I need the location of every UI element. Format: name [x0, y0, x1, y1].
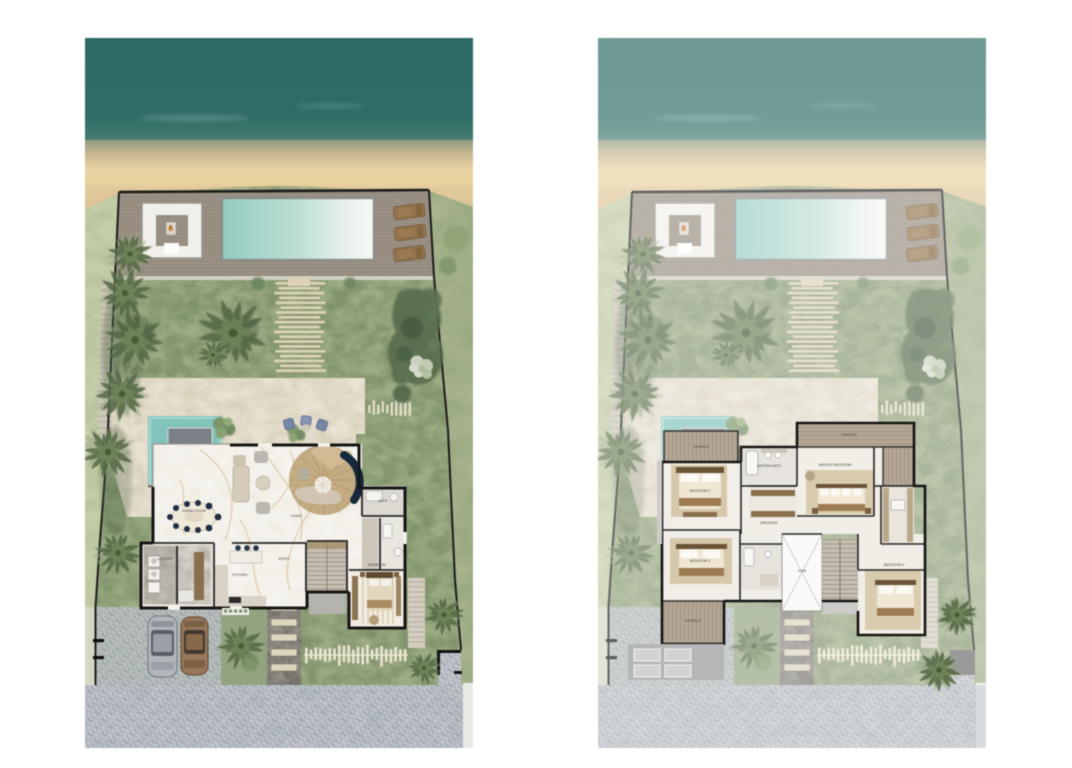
svg-text:BEDROOM 4: BEDROOM 4: [884, 563, 904, 567]
svg-text:BATH: BATH: [379, 499, 388, 503]
svg-text:BEDROOM 2: BEDROOM 2: [690, 489, 710, 493]
svg-text:MASTER BATH: MASTER BATH: [757, 464, 781, 468]
svg-text:ENTRY: ENTRY: [278, 557, 290, 561]
svg-text:BEDROOM 3: BEDROOM 3: [690, 559, 710, 563]
svg-text:DINING ROOM: DINING ROOM: [182, 509, 206, 513]
svg-text:KITCHEN: KITCHEN: [233, 573, 248, 577]
svg-text:MASTER BEDROOM: MASTER BEDROOM: [819, 463, 852, 467]
svg-text:TERRACE: TERRACE: [685, 619, 702, 623]
svg-text:VOID: VOID: [798, 569, 807, 573]
svg-text:DRESSING: DRESSING: [760, 521, 778, 525]
svg-text:BEDROOM: BEDROOM: [368, 563, 386, 567]
svg-text:LIVING: LIVING: [290, 514, 301, 518]
svg-text:LAUNDRY: LAUNDRY: [157, 557, 174, 561]
svg-text:TERRACE: TERRACE: [841, 433, 858, 437]
svg-text:TERRACE: TERRACE: [693, 445, 710, 449]
